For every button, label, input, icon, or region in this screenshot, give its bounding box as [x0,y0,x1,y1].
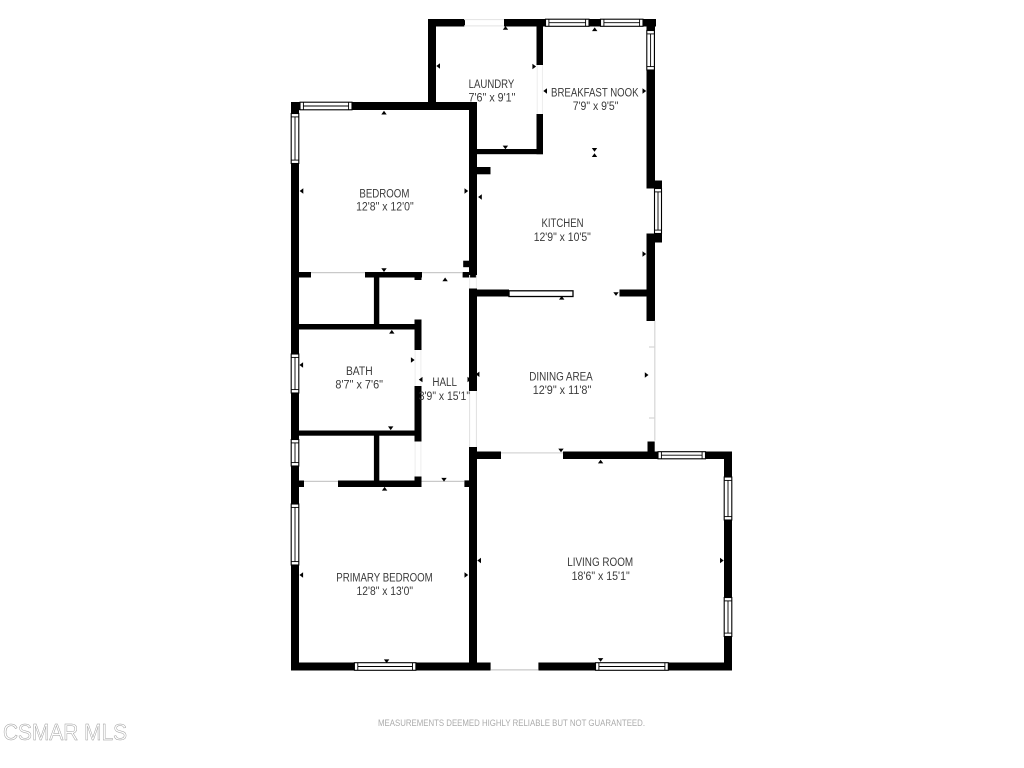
svg-text:KITCHEN: KITCHEN [542,216,584,230]
svg-text:12'8" x 13'0": 12'8" x 13'0" [357,584,414,598]
svg-text:HALL: HALL [432,375,457,389]
svg-text:18'6" x 15'1": 18'6" x 15'1" [572,569,630,583]
svg-text:MEASUREMENTS DEEMED HIGHLY REL: MEASUREMENTS DEEMED HIGHLY RELIABLE BUT … [378,718,645,729]
svg-text:7'9" x 9'5": 7'9" x 9'5" [573,99,619,113]
svg-text:PRIMARY BEDROOM: PRIMARY BEDROOM [336,571,433,585]
svg-text:DINING AREA: DINING AREA [529,369,593,383]
svg-text:BEDROOM: BEDROOM [359,187,409,201]
svg-text:3'9" x 15'1": 3'9" x 15'1" [419,389,470,403]
svg-text:LAUNDRY: LAUNDRY [469,77,515,91]
svg-text:12'8" x 12'0": 12'8" x 12'0" [356,200,414,214]
svg-text:BREAKFAST NOOK: BREAKFAST NOOK [551,86,639,100]
svg-text:LIVING ROOM: LIVING ROOM [567,555,633,569]
svg-text:12'9" x 10'5": 12'9" x 10'5" [534,230,591,244]
svg-text:12'9" x 11'8": 12'9" x 11'8" [533,383,592,397]
svg-text:CSMAR MLS: CSMAR MLS [3,719,127,745]
svg-text:7'6" x 9'1": 7'6" x 9'1" [469,91,516,105]
svg-text:BATH: BATH [346,364,373,378]
svg-text:8'7" x 7'6": 8'7" x 7'6" [335,378,383,392]
